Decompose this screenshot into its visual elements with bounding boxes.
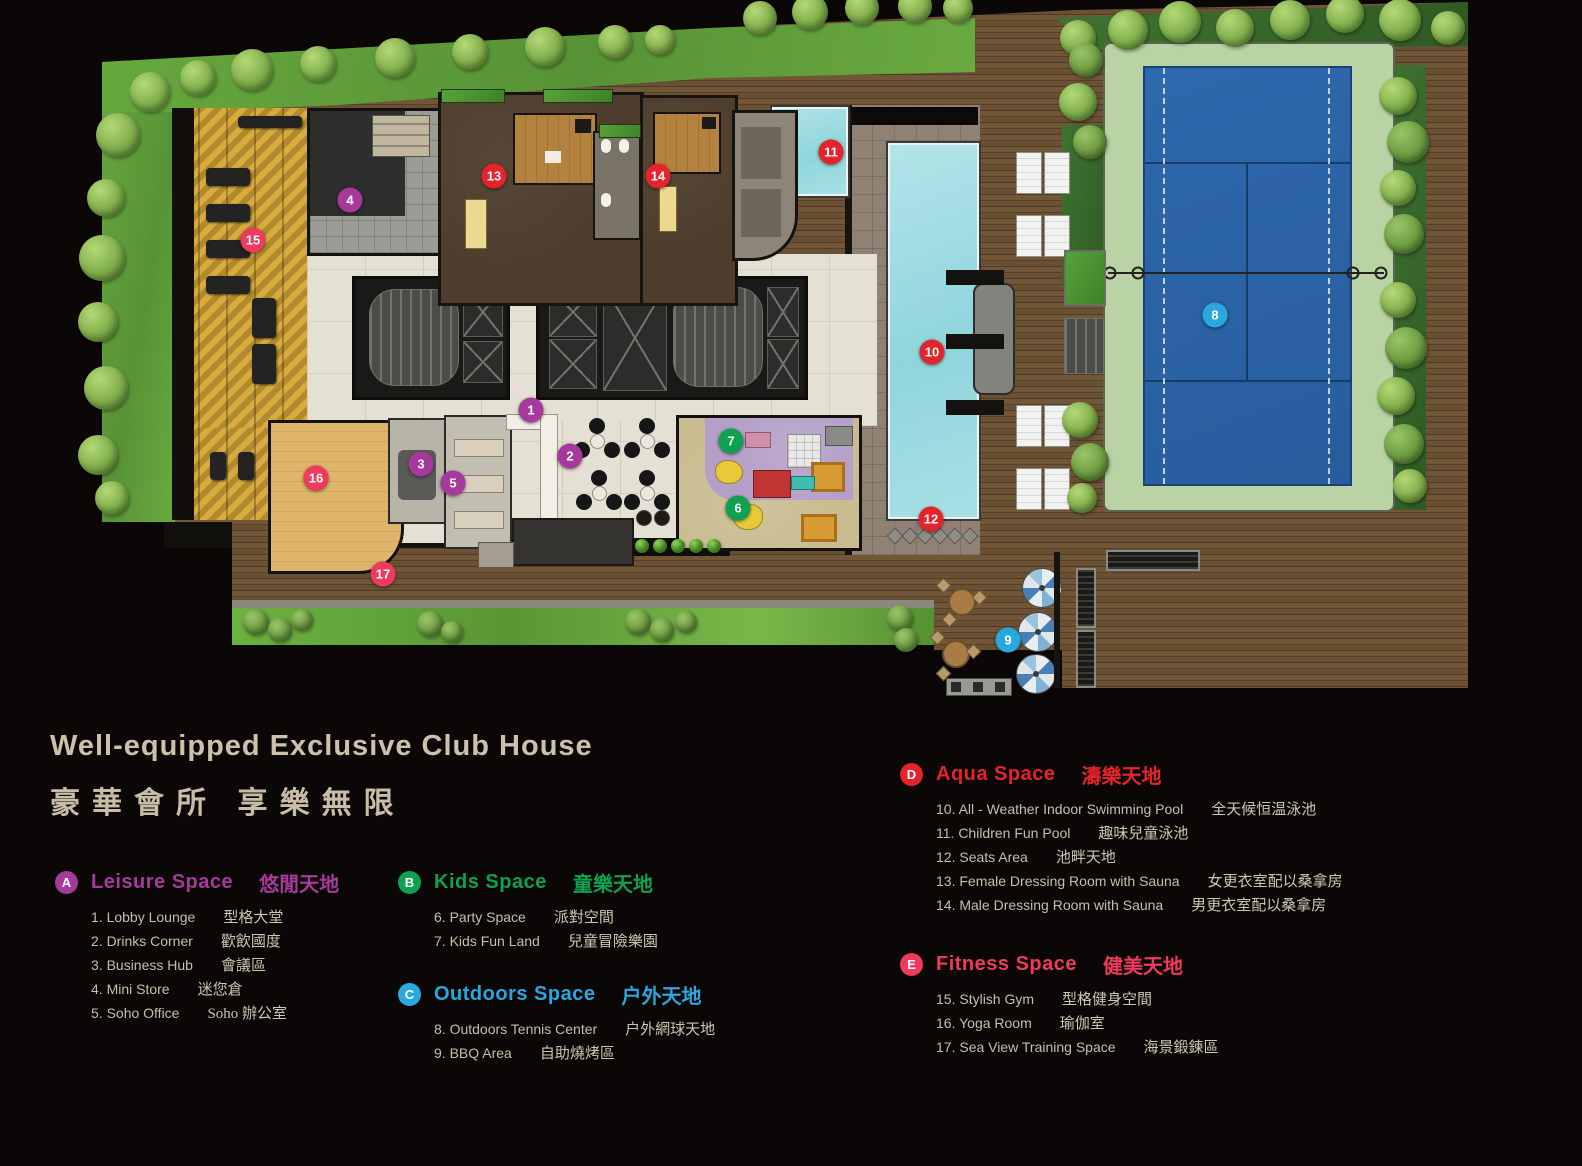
plan-markers: 1234567891011121314151617 — [0, 0, 1582, 710]
legend-item: 4. Mini Store迷您倉 — [91, 978, 339, 1002]
section-badge-b: B — [398, 871, 421, 894]
plan-marker-16: 16 — [304, 466, 329, 491]
legend-item: 1. Lobby Lounge型格大堂 — [91, 906, 339, 930]
legend-item-zh: 自助燒烤區 — [540, 1046, 615, 1062]
plan-marker-6: 6 — [726, 496, 751, 521]
section-badge-c: C — [398, 983, 421, 1006]
legend-item: 9. BBQ Area自助燒烤區 — [434, 1042, 715, 1066]
legend-section-leisure: A Leisure Space 悠閒天地 1. Lobby Lounge型格大堂… — [55, 868, 339, 1026]
legend-item-en: 1. Lobby Lounge — [91, 909, 195, 925]
section-badge-e: E — [900, 953, 923, 976]
legend-item-en: 8. Outdoors Tennis Center — [434, 1021, 597, 1037]
plan-marker-12: 12 — [919, 507, 944, 532]
legend-item: 2. Drinks Corner歡飲國度 — [91, 930, 339, 954]
site-plan: 1234567891011121314151617 — [0, 0, 1582, 710]
section-title-en: Fitness Space — [936, 953, 1077, 976]
page-title-zh: 豪華會所 享樂無限 — [50, 778, 406, 822]
plan-marker-9: 9 — [996, 628, 1021, 653]
legend-section-kids: B Kids Space 童樂天地 6. Party Space派對空間7. K… — [398, 868, 658, 954]
legend-header: B Kids Space 童樂天地 — [398, 868, 658, 897]
legend-item-en: 13. Female Dressing Room with Sauna — [936, 873, 1180, 889]
section-badge-a: A — [55, 871, 78, 894]
legend-item-zh: 池畔天地 — [1056, 850, 1116, 866]
plan-marker-13: 13 — [482, 164, 507, 189]
legend-item: 6. Party Space派對空間 — [434, 906, 658, 930]
legend-header: D Aqua Space 濤樂天地 — [900, 760, 1343, 789]
legend-item-zh: 趣味兒童泳池 — [1098, 826, 1188, 842]
legend-item-zh: 户外網球天地 — [625, 1022, 715, 1038]
plan-marker-3: 3 — [409, 452, 434, 477]
legend-item-zh: 迷您倉 — [198, 982, 243, 998]
section-title-en: Leisure Space — [91, 871, 233, 894]
legend-item-list: 10. All - Weather Indoor Swimming Pool全天… — [936, 798, 1343, 918]
legend-item-zh: 型格健身空間 — [1062, 992, 1152, 1008]
page-title-en: Well-equipped Exclusive Club House — [50, 730, 593, 763]
legend-item-zh: 會議區 — [221, 958, 266, 974]
plan-marker-1: 1 — [519, 398, 544, 423]
plan-marker-10: 10 — [920, 340, 945, 365]
legend-item: 5. Soho OfficeSoho 辦公室 — [91, 1002, 339, 1026]
legend-item-en: 15. Stylish Gym — [936, 991, 1034, 1007]
legend-item-zh: 女更衣室配以桑拿房 — [1208, 874, 1343, 890]
section-title-zh: 户外天地 — [621, 980, 701, 1009]
legend-item: 13. Female Dressing Room with Sauna女更衣室配… — [936, 870, 1343, 894]
plan-marker-17: 17 — [371, 562, 396, 587]
legend-item-list: 8. Outdoors Tennis Center户外網球天地9. BBQ Ar… — [434, 1018, 715, 1066]
section-badge-d: D — [900, 763, 923, 786]
legend-item-en: 9. BBQ Area — [434, 1045, 512, 1061]
legend-item-en: 7. Kids Fun Land — [434, 933, 540, 949]
legend-item-zh: 派對空間 — [554, 910, 614, 926]
legend-item-zh: 歡飲國度 — [221, 934, 281, 950]
legend-item-en: 4. Mini Store — [91, 981, 170, 997]
section-title-zh: 健美天地 — [1103, 950, 1183, 979]
legend-item-en: 2. Drinks Corner — [91, 933, 193, 949]
legend-item-zh: 瑜伽室 — [1060, 1016, 1105, 1032]
legend-item-list: 6. Party Space派對空間7. Kids Fun Land兒童冒險樂園 — [434, 906, 658, 954]
legend-item-zh: 兒童冒險樂園 — [568, 934, 658, 950]
legend-item-zh: 男更衣室配以桑拿房 — [1191, 898, 1326, 914]
legend-item-list: 15. Stylish Gym型格健身空間16. Yoga Room瑜伽室17.… — [936, 988, 1219, 1060]
legend-item-en: 12. Seats Area — [936, 849, 1028, 865]
legend-item-zh: 全天候恒温泳池 — [1211, 802, 1316, 818]
legend-item: 7. Kids Fun Land兒童冒險樂園 — [434, 930, 658, 954]
legend-item-en: 16. Yoga Room — [936, 1015, 1032, 1031]
legend-item: 10. All - Weather Indoor Swimming Pool全天… — [936, 798, 1343, 822]
legend-item-list: 1. Lobby Lounge型格大堂2. Drinks Corner歡飲國度3… — [91, 906, 339, 1026]
legend-item: 8. Outdoors Tennis Center户外網球天地 — [434, 1018, 715, 1042]
plan-marker-15: 15 — [241, 228, 266, 253]
legend-header: C Outdoors Space 户外天地 — [398, 980, 715, 1009]
legend-item-en: 17. Sea View Training Space — [936, 1039, 1116, 1055]
legend-item: 11. Children Fun Pool趣味兒童泳池 — [936, 822, 1343, 846]
section-title-zh: 濤樂天地 — [1081, 760, 1161, 789]
legend-section-outdoors: C Outdoors Space 户外天地 8. Outdoors Tennis… — [398, 980, 715, 1066]
legend-section-aqua: D Aqua Space 濤樂天地 10. All - Weather Indo… — [900, 760, 1343, 918]
legend-item-zh: 型格大堂 — [223, 910, 283, 926]
plan-marker-14: 14 — [646, 164, 671, 189]
legend-item-en: 3. Business Hub — [91, 957, 193, 973]
plan-marker-11: 11 — [819, 140, 844, 165]
legend-header: E Fitness Space 健美天地 — [900, 950, 1219, 979]
legend-header: A Leisure Space 悠閒天地 — [55, 868, 339, 897]
section-title-en: Aqua Space — [936, 763, 1055, 786]
plan-marker-8: 8 — [1203, 303, 1228, 328]
plan-marker-4: 4 — [338, 188, 363, 213]
section-title-zh: 悠閒天地 — [259, 868, 339, 897]
legend-item: 14. Male Dressing Room with Sauna男更衣室配以桑… — [936, 894, 1343, 918]
legend-item-en: 10. All - Weather Indoor Swimming Pool — [936, 801, 1183, 817]
section-title-en: Outdoors Space — [434, 983, 595, 1006]
legend-item: 12. Seats Area池畔天地 — [936, 846, 1343, 870]
legend-item: 15. Stylish Gym型格健身空間 — [936, 988, 1219, 1012]
section-title-zh: 童樂天地 — [573, 868, 653, 897]
plan-marker-5: 5 — [441, 471, 466, 496]
brochure-page: 1234567891011121314151617 Well-equipped … — [0, 0, 1582, 1166]
legend-item: 3. Business Hub會議區 — [91, 954, 339, 978]
legend-item: 17. Sea View Training Space海景鍛鍊區 — [936, 1036, 1219, 1060]
legend-section-fitness: E Fitness Space 健美天地 15. Stylish Gym型格健身… — [900, 950, 1219, 1060]
legend-item-zh: 海景鍛鍊區 — [1144, 1040, 1219, 1056]
legend-item-en: 11. Children Fun Pool — [936, 825, 1070, 841]
plan-marker-7: 7 — [719, 429, 744, 454]
plan-marker-2: 2 — [558, 444, 583, 469]
legend-item-en: 5. Soho Office — [91, 1005, 179, 1021]
section-title-en: Kids Space — [434, 871, 547, 894]
legend-item: 16. Yoga Room瑜伽室 — [936, 1012, 1219, 1036]
legend-item-zh: Soho 辦公室 — [207, 1006, 287, 1022]
legend-item-en: 6. Party Space — [434, 909, 526, 925]
legend-item-en: 14. Male Dressing Room with Sauna — [936, 897, 1163, 913]
